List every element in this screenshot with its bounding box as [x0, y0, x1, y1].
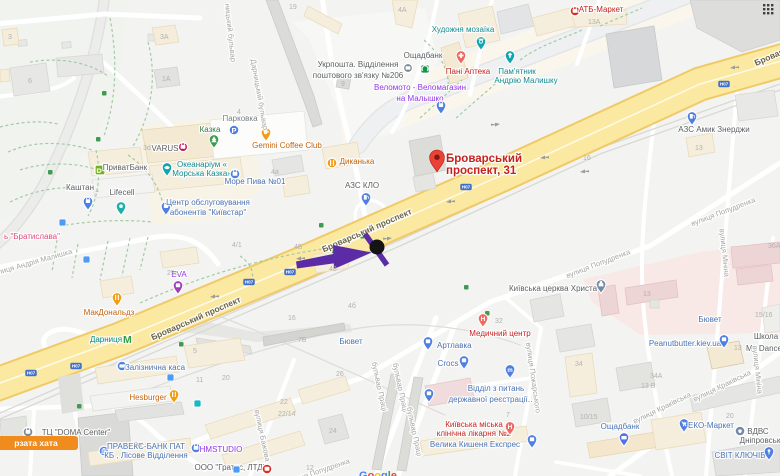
- svg-text:32: 32: [495, 318, 503, 325]
- svg-text:Gemini Coffee Club: Gemini Coffee Club: [252, 141, 322, 150]
- svg-text:VARUS: VARUS: [152, 144, 179, 153]
- svg-text:36А: 36А: [768, 243, 780, 250]
- svg-text:11: 11: [196, 377, 203, 384]
- svg-text:Н07: Н07: [27, 371, 36, 376]
- svg-text:13А: 13А: [588, 19, 601, 26]
- svg-text:Веломото - Веломагазин: Веломото - Веломагазин: [374, 83, 466, 92]
- svg-text:22/14: 22/14: [278, 411, 296, 418]
- svg-text:13: 13: [695, 145, 703, 152]
- svg-text:48: 48: [329, 266, 337, 273]
- svg-text:проспект, 31: проспект, 31: [446, 165, 517, 177]
- svg-text:Медичний центр: Медичний центр: [469, 329, 531, 338]
- svg-text:Художня мозаїка: Художня мозаїка: [432, 25, 495, 34]
- svg-text:Київська церква Христа: Київська церква Христа: [509, 284, 598, 293]
- svg-text:Андрію Малишку: Андрію Малишку: [494, 76, 557, 85]
- svg-text:13: 13: [643, 291, 651, 298]
- svg-text:АТБ-Маркет: АТБ-Маркет: [579, 5, 624, 14]
- svg-text:Центр обслуговування: Центр обслуговування: [166, 198, 250, 207]
- svg-text:1А: 1А: [162, 76, 171, 83]
- svg-text:Дніпровськ: Дніпровськ: [740, 436, 780, 445]
- svg-text:Відділ з питань: Відділ з питань: [468, 384, 524, 393]
- svg-text:12: 12: [306, 465, 314, 472]
- svg-text:Казка: Казка: [200, 125, 221, 134]
- svg-text:4/1: 4/1: [232, 242, 242, 249]
- svg-text:СВІТ КЛЮЧІВ: СВІТ КЛЮЧІВ: [714, 451, 765, 460]
- svg-text:Диканька: Диканька: [340, 157, 375, 166]
- svg-text:19: 19: [289, 4, 297, 11]
- svg-text:ООО "Гратис, ЛТД": ООО "Гратис, ЛТД": [194, 463, 265, 472]
- svg-text:Броварський: Броварський: [446, 153, 522, 165]
- svg-text:ЕКО-Маркет: ЕКО-Маркет: [688, 421, 734, 430]
- svg-text:10/15: 10/15: [580, 414, 598, 421]
- svg-text:Ощадбанк: Ощадбанк: [404, 51, 443, 60]
- svg-text:6: 6: [28, 78, 32, 85]
- svg-text:Н: Н: [508, 424, 513, 431]
- svg-text:ПриватБанк: ПриватБанк: [103, 163, 148, 172]
- svg-text:29а: 29а: [167, 270, 179, 277]
- svg-text:Н07: Н07: [720, 82, 729, 87]
- svg-text:16: 16: [288, 315, 296, 322]
- svg-text:7: 7: [506, 412, 510, 419]
- svg-text:Пам'ятник: Пам'ятник: [498, 67, 536, 76]
- svg-text:Н07: Н07: [245, 280, 254, 285]
- svg-text:державної реєстрації…: державної реєстрації…: [448, 395, 535, 404]
- svg-text:Lifecell: Lifecell: [110, 188, 135, 197]
- svg-text:Н07: Н07: [462, 185, 471, 190]
- svg-text:АЗС КЛО: АЗС КЛО: [345, 181, 379, 190]
- svg-text:P: P: [231, 126, 236, 135]
- svg-text:ТЦ "DOMA Center": ТЦ "DOMA Center": [42, 428, 111, 437]
- svg-text:Google: Google: [359, 470, 397, 476]
- svg-text:3: 3: [8, 34, 12, 41]
- svg-text:ь "Братислава": ь "Братислава": [4, 232, 60, 241]
- svg-text:24: 24: [329, 428, 337, 435]
- svg-text:Море Пива №01: Море Пива №01: [225, 177, 286, 186]
- svg-text:Пані Аптека: Пані Аптека: [446, 67, 491, 76]
- svg-text:34: 34: [575, 361, 583, 368]
- svg-text:15/16: 15/16: [755, 312, 773, 319]
- svg-text:КБ , Лісове Відділення: КБ , Лісове Відділення: [104, 451, 188, 460]
- svg-text:М: М: [123, 334, 132, 346]
- svg-text:Н07: Н07: [72, 364, 81, 369]
- svg-text:26: 26: [336, 371, 344, 378]
- svg-text:Океанаріум «: Океанаріум «: [177, 160, 227, 169]
- svg-text:Дарниця: Дарниця: [90, 335, 122, 344]
- svg-text:13 В: 13 В: [641, 383, 656, 390]
- svg-text:Каштан: Каштан: [66, 183, 94, 192]
- svg-text:Н: Н: [481, 316, 486, 323]
- svg-text:Залізнична каса: Залізнична каса: [125, 363, 186, 372]
- svg-text:Peanutbutter.kiev.ua: Peanutbutter.kiev.ua: [649, 339, 722, 348]
- svg-text:Київська міська: Київська міська: [445, 420, 503, 429]
- svg-text:13: 13: [734, 345, 742, 352]
- svg-text:Бювет: Бювет: [698, 315, 722, 324]
- svg-text:m: m: [507, 368, 512, 374]
- svg-text:9: 9: [341, 81, 345, 88]
- svg-text:ПРАВЕКС-БАНК ПАТ: ПРАВЕКС-БАНК ПАТ: [107, 442, 185, 451]
- svg-text:рзата хата: рзата хата: [14, 438, 58, 448]
- svg-text:АЗС Амик Знерджи: АЗС Амик Знерджи: [678, 125, 749, 134]
- svg-text:4А: 4А: [398, 7, 407, 14]
- svg-text:Артлавка: Артлавка: [437, 341, 472, 350]
- svg-text:4: 4: [237, 109, 241, 116]
- svg-text:4Б: 4Б: [294, 244, 303, 251]
- svg-text:34А: 34А: [650, 373, 663, 380]
- svg-text:4б: 4б: [348, 302, 356, 310]
- svg-text:20: 20: [222, 375, 230, 382]
- svg-text:22: 22: [280, 399, 288, 406]
- svg-text:поштового зв'язку №206: поштового зв'язку №206: [313, 71, 404, 80]
- svg-text:клінічна лікарня №2: клінічна лікарня №2: [437, 429, 512, 438]
- svg-text:абонентів "Київстар": абонентів "Київстар": [170, 208, 247, 217]
- svg-text:7Б: 7Б: [298, 337, 307, 344]
- svg-text:Н07: Н07: [286, 270, 295, 275]
- svg-text:4а: 4а: [271, 169, 279, 176]
- svg-text:Велика Кишеня Експрес: Велика Кишеня Експрес: [430, 440, 520, 449]
- svg-text:16: 16: [583, 155, 591, 162]
- svg-text:Школа: Школа: [754, 332, 779, 341]
- svg-text:ВДВС: ВДВС: [747, 427, 769, 436]
- svg-text:Укрпошта. Відділення: Укрпошта. Відділення: [318, 60, 399, 69]
- svg-text:Crocs: Crocs: [438, 359, 459, 368]
- svg-text:9а: 9а: [134, 442, 142, 449]
- svg-text:3d: 3d: [143, 145, 151, 152]
- svg-text:на Малышко: на Малышко: [396, 94, 444, 103]
- svg-text:Hesburger: Hesburger: [129, 393, 167, 402]
- svg-text:3А: 3А: [160, 34, 169, 41]
- svg-text:HMSTUDIO: HMSTUDIO: [200, 445, 243, 454]
- svg-text:20: 20: [726, 413, 734, 420]
- svg-text:МакДональдз: МакДональдз: [84, 308, 135, 317]
- svg-text:5: 5: [193, 348, 197, 355]
- svg-text:Бювет: Бювет: [339, 337, 363, 346]
- svg-text:Морська Казка»: Морська Казка»: [172, 169, 232, 178]
